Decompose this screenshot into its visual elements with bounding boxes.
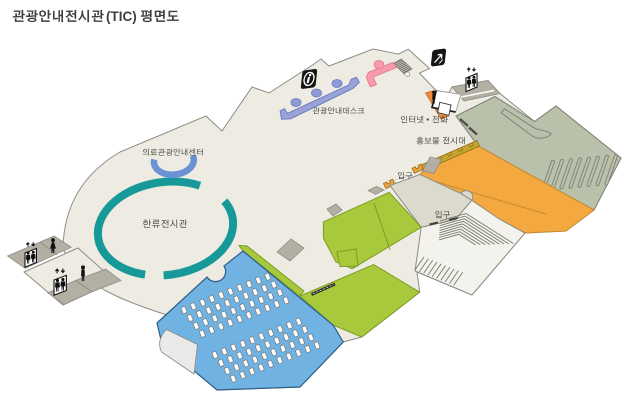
svg-text:(TIC): (TIC): [106, 9, 137, 24]
